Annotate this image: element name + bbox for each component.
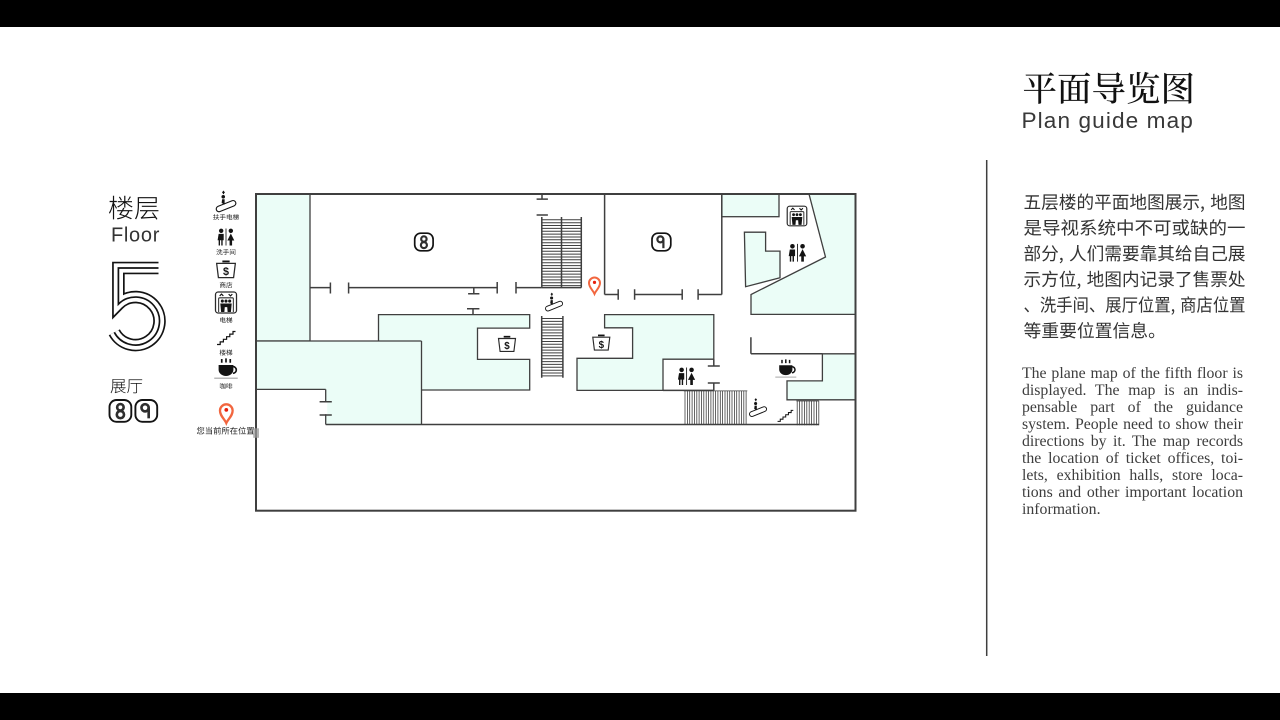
svg-text:Plan guide map: Plan guide map [1022, 108, 1194, 133]
svg-text:Floor: Floor [111, 225, 160, 247]
